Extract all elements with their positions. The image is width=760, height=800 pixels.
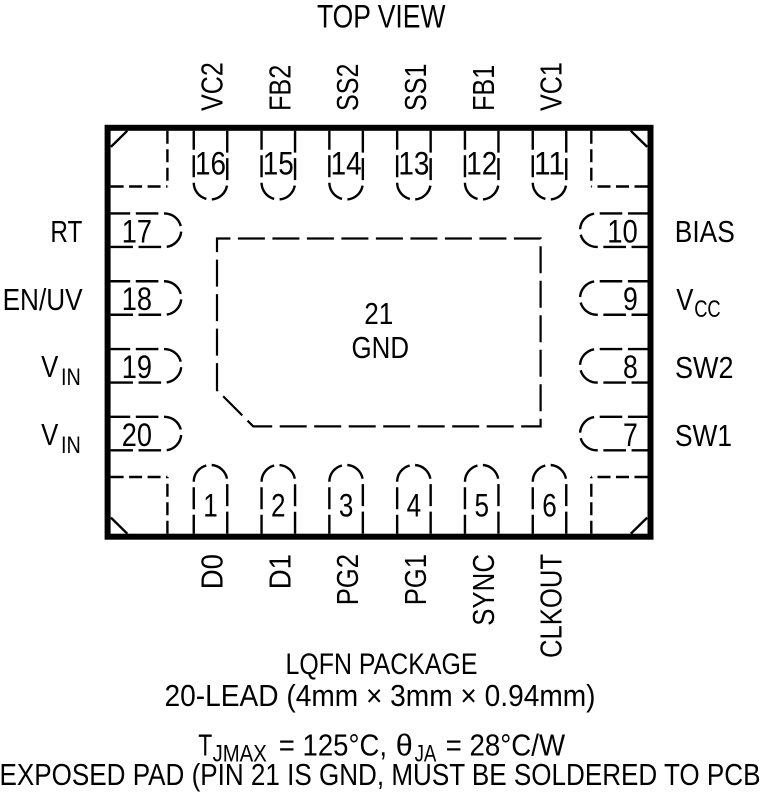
svg-text:CC: CC <box>694 296 721 323</box>
svg-text:RT: RT <box>50 214 82 249</box>
svg-text:13: 13 <box>398 146 429 182</box>
svg-text:V: V <box>41 349 58 384</box>
svg-text:3: 3 <box>339 488 354 524</box>
svg-text:1: 1 <box>203 488 218 524</box>
svg-text:D1: D1 <box>262 554 297 589</box>
svg-text:D0: D0 <box>195 554 230 589</box>
svg-text:11: 11 <box>534 146 565 182</box>
svg-text:SW2: SW2 <box>675 350 734 385</box>
svg-text:17: 17 <box>122 213 152 249</box>
svg-text:14: 14 <box>331 146 362 182</box>
svg-text:15: 15 <box>263 146 294 182</box>
svg-text:21: 21 <box>364 296 393 331</box>
svg-text:4: 4 <box>407 488 422 524</box>
svg-text:EN/UV: EN/UV <box>3 282 83 317</box>
svg-text:CLKOUT: CLKOUT <box>534 554 569 658</box>
svg-text:FB2: FB2 <box>262 65 297 111</box>
svg-text:FB1: FB1 <box>466 65 501 111</box>
svg-text:VC1: VC1 <box>534 62 569 111</box>
svg-text:SS1: SS1 <box>398 64 433 111</box>
svg-text:10: 10 <box>607 213 638 249</box>
svg-text:7: 7 <box>623 417 638 453</box>
svg-text:5: 5 <box>474 488 489 524</box>
svg-text:LQFN PACKAGE: LQFN PACKAGE <box>286 648 478 681</box>
svg-text:IN: IN <box>61 364 81 391</box>
svg-text:SS2: SS2 <box>330 64 365 111</box>
svg-text:19: 19 <box>122 349 152 385</box>
svg-text:EXPOSED PAD (PIN 21 IS GND, MU: EXPOSED PAD (PIN 21 IS GND, MUST BE SOLD… <box>0 758 760 792</box>
svg-text:GND: GND <box>352 330 410 365</box>
svg-text:PG2: PG2 <box>330 554 365 605</box>
svg-text:IN: IN <box>61 432 81 459</box>
svg-text:PG1: PG1 <box>398 554 433 605</box>
svg-text:TOP VIEW: TOP VIEW <box>317 0 446 35</box>
svg-text:SYNC: SYNC <box>466 554 501 626</box>
svg-text:18: 18 <box>122 281 152 317</box>
svg-text:12: 12 <box>466 146 497 182</box>
svg-text:V: V <box>41 417 58 452</box>
svg-text:6: 6 <box>542 488 557 524</box>
svg-text:VC2: VC2 <box>195 62 230 111</box>
svg-text:BIAS: BIAS <box>675 214 735 249</box>
svg-text:20: 20 <box>122 417 152 453</box>
svg-text:8: 8 <box>623 349 638 385</box>
svg-text:V: V <box>676 282 693 317</box>
svg-text:9: 9 <box>623 281 638 317</box>
svg-text:16: 16 <box>195 146 226 182</box>
svg-text:SW1: SW1 <box>675 418 732 453</box>
svg-text:2: 2 <box>271 488 286 524</box>
svg-text:20-LEAD (4mm × 3mm × 0.94mm): 20-LEAD (4mm × 3mm × 0.94mm) <box>165 679 596 713</box>
